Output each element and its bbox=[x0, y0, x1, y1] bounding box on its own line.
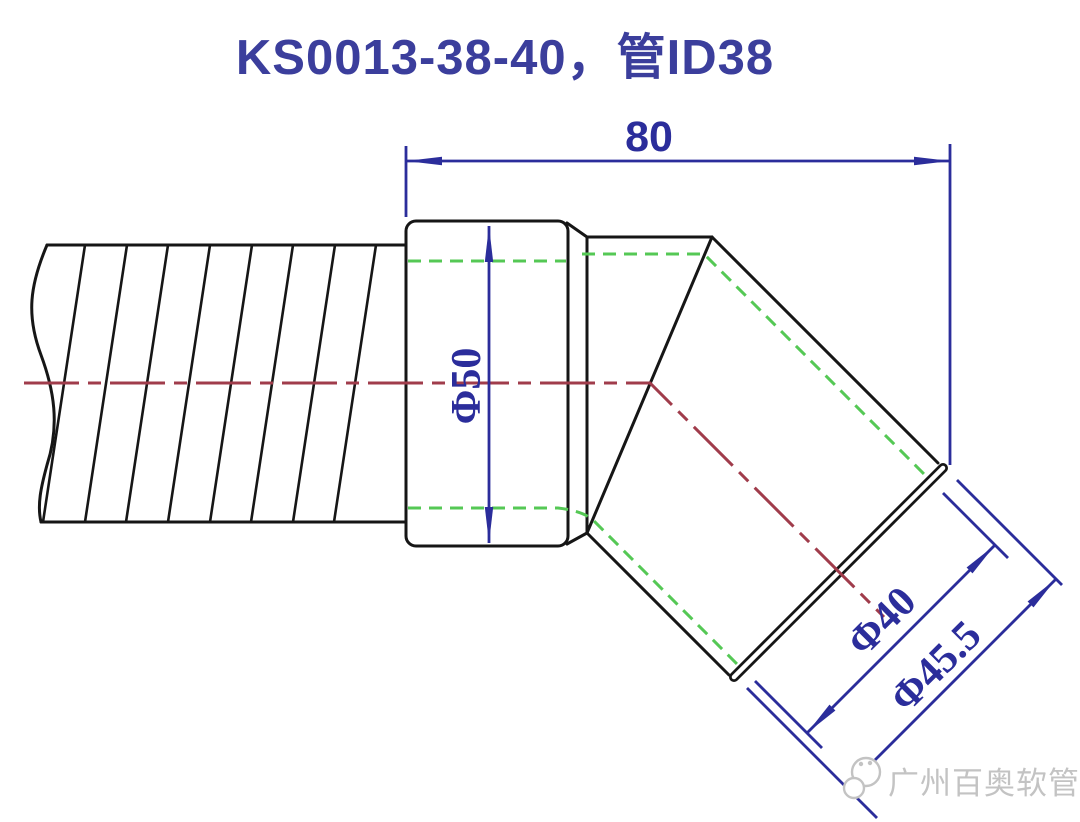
dim-text-diameter-50: Φ50 bbox=[444, 348, 490, 425]
elbow-miter-line bbox=[587, 237, 712, 533]
drawing-canvas: 80 Φ50 Φ40 Φ45.5 KS0013-38-40，管ID38 广州百奥… bbox=[0, 0, 1080, 822]
ext-line-45-5-upper bbox=[957, 480, 1062, 585]
dim-text-diameter-40: Φ40 bbox=[838, 578, 925, 665]
cuff-chamfer-top bbox=[567, 223, 587, 237]
watermark-logo-icon-small bbox=[844, 778, 864, 798]
watermark-logo-eye bbox=[859, 762, 863, 766]
hidden-line-elbow-top bbox=[582, 254, 928, 478]
watermark: 广州百奥软管 bbox=[844, 758, 1080, 801]
elbow-outer-edge bbox=[712, 237, 938, 463]
technical-drawing: 80 Φ50 Φ40 Φ45.5 KS0013-38-40，管ID38 广州百奥… bbox=[0, 0, 1080, 822]
dim-text-length-80: 80 bbox=[625, 113, 673, 161]
ext-line-40-upper bbox=[943, 493, 1008, 558]
elbow-inner-edge bbox=[587, 533, 729, 675]
watermark-text: 广州百奥软管 bbox=[888, 766, 1080, 801]
drawing-title: KS0013-38-40，管ID38 bbox=[236, 31, 774, 85]
cuff-chamfer-bottom bbox=[567, 533, 587, 544]
watermark-logo-eye bbox=[868, 761, 872, 765]
ext-line-40-lower bbox=[755, 681, 822, 748]
